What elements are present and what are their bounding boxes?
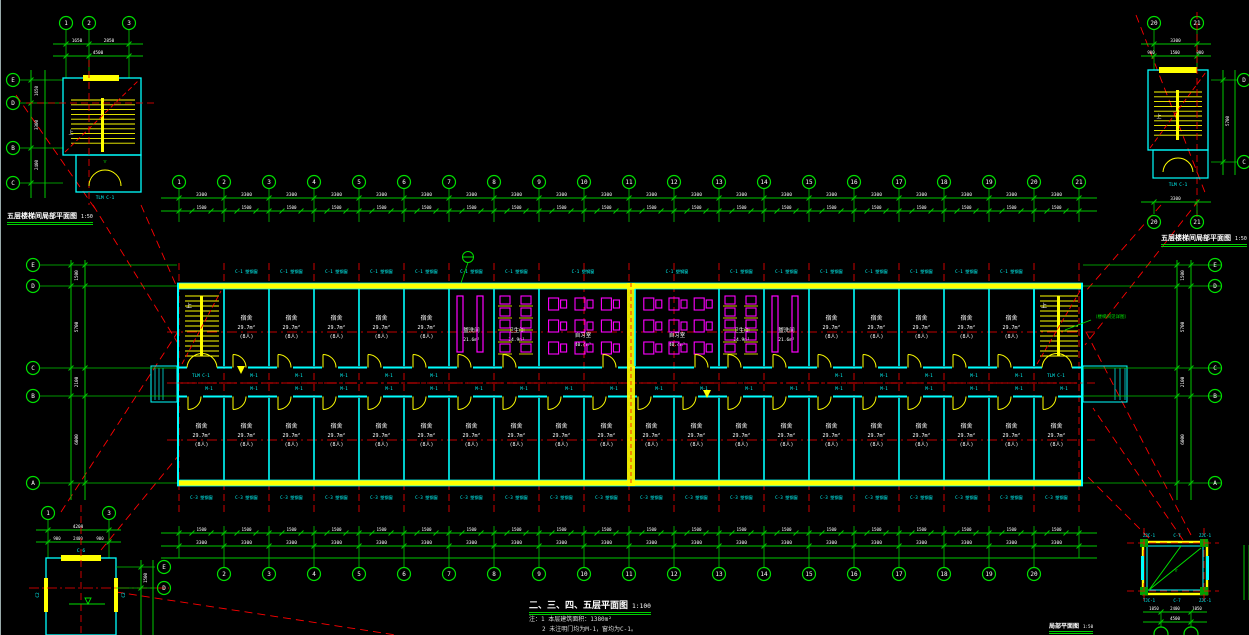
plan-note-1: 注：1 本层建筑面积：1380m² xyxy=(529,614,612,623)
frame-tag: ZJC-1 xyxy=(1143,533,1156,538)
toilet-stall xyxy=(521,320,531,328)
grid-bubble-label: 3 xyxy=(127,20,131,27)
door-tag: M-1 xyxy=(565,386,573,391)
window-tag-upper: C-1 塑钢窗 xyxy=(572,268,595,275)
grid-bubble-label: 8 xyxy=(492,571,496,578)
grid-bubble-label: 12 xyxy=(670,571,678,578)
room-area: 29.7m² xyxy=(1002,325,1020,331)
study-table xyxy=(601,342,611,354)
room-occupancy: (8人) xyxy=(374,334,388,340)
toilet-stall xyxy=(725,308,735,316)
dim-window: 1500 xyxy=(556,527,567,532)
grid-bubble-label: 9 xyxy=(537,571,541,578)
room-area: 29.7m² xyxy=(372,433,390,439)
dim: 1650 xyxy=(34,85,39,96)
room-occupancy: (8人) xyxy=(644,442,658,448)
room-occupancy: (8人) xyxy=(374,442,388,448)
window-tag: C2 xyxy=(35,592,41,598)
grid-bubble-label: 5 xyxy=(357,179,361,186)
study-chair xyxy=(561,344,567,352)
grid-bubble-label: 21 xyxy=(1075,179,1083,186)
room-area: 29.7m² xyxy=(192,433,210,439)
grid-bubble-label: D xyxy=(11,100,15,107)
dim-bay: 3300 xyxy=(1051,192,1062,198)
room-area: 29.7m² xyxy=(1047,433,1065,439)
grid-bubble-label: 20 xyxy=(1030,571,1038,578)
dim: 2850 xyxy=(104,38,115,44)
stair-up-label: 上 xyxy=(68,129,73,136)
room-label-dorm: 宿舍 xyxy=(690,422,702,430)
door-tag: M-1 xyxy=(880,386,888,391)
room-area: 29.7m² xyxy=(642,433,660,439)
stair-tr-scale: 1:50 xyxy=(1235,236,1247,242)
room-label-dorm: 宿舍 xyxy=(330,314,342,322)
dim: 5700 xyxy=(1225,115,1230,126)
grid-bubble-label: 15 xyxy=(805,179,813,186)
grid-bubble-label: D xyxy=(31,283,35,290)
dim-bay: 3300 xyxy=(781,192,792,198)
room-occupancy: (8人) xyxy=(869,442,883,448)
dim-window: 1500 xyxy=(241,205,252,210)
room-area: 29.7m² xyxy=(237,325,255,331)
dim-bay: 3300 xyxy=(466,192,477,198)
toilet-stall xyxy=(500,320,510,328)
dim-bay: 3300 xyxy=(241,192,252,198)
grid-bubble-label: 13 xyxy=(715,179,723,186)
study-chair xyxy=(613,344,619,352)
stair-window xyxy=(83,75,119,81)
window-tag-lower: C-3 塑钢窗 xyxy=(595,494,618,501)
toilet-stall xyxy=(725,320,735,328)
room-area: 29.7m² xyxy=(507,433,525,439)
dim-bay: 3300 xyxy=(961,192,972,198)
toilet-stall xyxy=(500,296,510,304)
room-label-dorm: 宿舍 xyxy=(375,314,387,322)
study-table xyxy=(575,298,585,310)
study-chair xyxy=(656,300,662,308)
grid-bubble-label: 14 xyxy=(760,179,768,186)
study-chair xyxy=(681,322,687,330)
grid-bubble-label: D xyxy=(1242,77,1246,84)
grid-bubble-label: 14 xyxy=(760,571,768,578)
room-label-dorm: 宿舍 xyxy=(285,314,297,322)
dim-window: 1500 xyxy=(601,205,612,210)
window xyxy=(44,578,48,612)
study-chair xyxy=(706,300,712,308)
grid-bubble-label: 10 xyxy=(580,179,588,186)
stair-rail xyxy=(1176,90,1179,140)
room-occupancy: (8人) xyxy=(554,442,568,448)
toilet-stall xyxy=(521,344,531,352)
dim-bay: 3300 xyxy=(601,540,612,546)
dim: 900 xyxy=(96,536,104,541)
door-tag: M-1 xyxy=(295,386,303,391)
level-mark xyxy=(85,598,91,604)
main-title-text: 二、三、四、五层平面图 xyxy=(529,601,628,611)
frame-tag: C-7 xyxy=(1173,598,1181,603)
room-area: 40.4m² xyxy=(575,342,592,348)
grid-bubble-label: 2 xyxy=(222,179,226,186)
grid-bubble-label: E xyxy=(1213,262,1217,269)
room-occupancy: (8人) xyxy=(869,334,883,340)
study-chair xyxy=(587,322,593,330)
dim: 3300 xyxy=(1170,196,1181,202)
room-label-dorm: 宿舍 xyxy=(510,422,522,430)
dim-bay: 3300 xyxy=(871,192,882,198)
grid-bubble-label: C xyxy=(31,365,35,372)
grid-bubble-label: E xyxy=(162,564,166,571)
window-tag-lower: C-3 塑钢窗 xyxy=(460,494,483,501)
room-label-dorm: 宿舍 xyxy=(1005,314,1017,322)
window-tag-upper: C-1 塑钢窗 xyxy=(505,268,528,275)
dim-bay: 3300 xyxy=(556,192,567,198)
grid-bubble-label: 1 xyxy=(64,20,68,27)
window-tag-lower: C-3 塑钢窗 xyxy=(730,494,753,501)
door-tag: M-1 xyxy=(610,386,618,391)
dim-bay: 3300 xyxy=(826,540,837,546)
grid-bubble-label: B xyxy=(31,393,35,400)
grid-bubble-label: 5 xyxy=(357,571,361,578)
dim: 2400 xyxy=(34,159,39,170)
frame-tag: ZJC-1 xyxy=(1199,533,1212,538)
window-tag-upper: C-1 塑钢窗 xyxy=(820,268,843,275)
study-table xyxy=(601,298,611,310)
room-label-dorm: 宿舍 xyxy=(735,422,747,430)
dim-bay: 3300 xyxy=(466,540,477,546)
dim-bay: 3300 xyxy=(196,192,207,198)
room-label-dorm: 宿舍 xyxy=(375,422,387,430)
dim: 900 xyxy=(53,536,61,541)
grid-bubble-label: D xyxy=(1213,283,1217,290)
room-occupancy: (8人) xyxy=(464,442,478,448)
cad-viewport[interactable]: { "canvas":{"w":1249,"h":635,"bg":"#0000… xyxy=(0,0,1249,635)
study-table xyxy=(694,298,704,310)
dim-window: 1500 xyxy=(826,205,837,210)
room-area: 29.7m² xyxy=(417,325,435,331)
grid-bubble-label: E xyxy=(31,262,35,269)
room-area: 29.7m² xyxy=(732,433,750,439)
window-tag-lower: C-3 塑钢窗 xyxy=(190,494,213,501)
door-tag: M-1 xyxy=(790,386,798,391)
room-area: 29.7m² xyxy=(372,325,390,331)
room-area: 29.7m² xyxy=(282,433,300,439)
study-chair xyxy=(561,322,567,330)
study-table xyxy=(575,320,585,332)
plan-note-2: 2 未注明门均为M-1，窗均为C-1。 xyxy=(542,624,637,633)
dim-bay: 3300 xyxy=(646,540,657,546)
dim-window: 1500 xyxy=(196,527,207,532)
grid-bubble-label: A xyxy=(31,480,35,487)
window-tag-lower: C-3 塑钢窗 xyxy=(505,494,528,501)
door-tag: M-1 xyxy=(385,386,393,391)
dim-window: 1500 xyxy=(511,205,522,210)
right-dim-chain: EDCBA1500570021006000 xyxy=(1083,259,1222,501)
grid-bubble-label: 2 xyxy=(87,20,91,27)
room-label-dorm: 宿舍 xyxy=(1005,422,1017,430)
room-area: 29.7m² xyxy=(912,433,930,439)
dim-window: 1500 xyxy=(1006,205,1017,210)
grid-bubble-label: 17 xyxy=(895,571,903,578)
dim-window: 1500 xyxy=(601,527,612,532)
dim-bay: 3300 xyxy=(331,540,342,546)
room-area: 29.7m² xyxy=(912,325,930,331)
room-label-dorm: 宿舍 xyxy=(285,422,297,430)
room-label-dorm: 宿舍 xyxy=(915,422,927,430)
grid-bubble-label: B xyxy=(11,145,15,152)
grid-bubble-label: 20 xyxy=(1150,219,1158,226)
dim: 4500 xyxy=(1170,616,1181,621)
room-area: 29.7m² xyxy=(237,433,255,439)
dim-bay: 3300 xyxy=(691,192,702,198)
dim-bay: 3300 xyxy=(781,540,792,546)
grid-bubble-label: A xyxy=(1213,480,1217,487)
room-label-dorm: 宿舍 xyxy=(1050,422,1062,430)
study-chair xyxy=(706,344,712,352)
main-title-scale: 1:100 xyxy=(632,603,651,610)
room-occupancy: (8人) xyxy=(959,334,973,340)
room-area: 29.7m² xyxy=(822,325,840,331)
main-plan: 上上 xyxy=(177,283,1083,486)
grid-bubble-label: 10 xyxy=(580,571,588,578)
toilet-stall xyxy=(746,296,756,304)
window-tag-lower: C-3 塑钢窗 xyxy=(685,494,708,501)
stair-window xyxy=(1159,67,1197,73)
study-chair xyxy=(706,322,712,330)
study-table xyxy=(644,320,654,332)
grid-bubble-label: 13 xyxy=(715,571,723,578)
dim-window: 1500 xyxy=(286,527,297,532)
room-area: 29.7m² xyxy=(417,433,435,439)
dim-bay: 3300 xyxy=(376,192,387,198)
room-label-dorm: 宿舍 xyxy=(465,422,477,430)
detail-bottom-right: ▽ZJC-1C-7ZJC-1TJC-1C-7ZJC-11050240010504… xyxy=(1127,528,1249,635)
window-tag-upper: C-1 塑钢窗 xyxy=(325,268,348,275)
grid-bubble-label: C xyxy=(1242,159,1246,166)
dim: 1500 xyxy=(1170,50,1180,55)
grid-bubble-label: 8 xyxy=(492,179,496,186)
dim: 1500 xyxy=(143,572,148,583)
dim-bay: 3300 xyxy=(511,540,522,546)
room-area: 29.7m² xyxy=(597,433,615,439)
window-tag-lower: C-3 塑钢窗 xyxy=(550,494,573,501)
stair-detail-title-tl: 五层楼梯间局部平面图1:50 xyxy=(7,211,93,225)
grid-bubble-label: 18 xyxy=(940,571,948,578)
dim-window: 1500 xyxy=(421,527,432,532)
study-table xyxy=(549,298,559,310)
study-table xyxy=(644,342,654,354)
dim: 4500 xyxy=(93,50,104,56)
dim-bay: 3300 xyxy=(916,540,927,546)
room-area: 29.7m² xyxy=(957,325,975,331)
wash-trough xyxy=(457,296,463,352)
window xyxy=(1141,556,1144,580)
door-tag: M-1 xyxy=(205,386,213,391)
dim: 3300 xyxy=(34,119,39,130)
room-label-dorm: 宿舍 xyxy=(870,422,882,430)
dim-window: 1500 xyxy=(421,205,432,210)
dim-bay: 3300 xyxy=(1006,540,1017,546)
room-label-dorm: 宿舍 xyxy=(960,422,972,430)
room-area: 29.7m² xyxy=(867,325,885,331)
toilet-stall xyxy=(725,296,735,304)
study-chair xyxy=(561,300,567,308)
grid-bubble-label: 12 xyxy=(670,179,678,186)
dim-window: 1500 xyxy=(1006,527,1017,532)
study-chair xyxy=(681,300,687,308)
room-area: 29.7m² xyxy=(462,433,480,439)
grid-bubble-label: 1 xyxy=(46,510,50,517)
room-occupancy: (8人) xyxy=(599,442,613,448)
grid-bubble-label: D xyxy=(162,585,166,592)
door-tag: M-1 xyxy=(430,373,438,378)
dim: 1050 xyxy=(1192,606,1202,611)
window-tag-upper: C-1 塑钢窗 xyxy=(865,268,888,275)
study-table xyxy=(549,320,559,332)
room-occupancy: (8人) xyxy=(194,442,208,448)
frame-tag: ZJC-1 xyxy=(1199,598,1212,603)
toilet-stall xyxy=(500,344,510,352)
room-occupancy: (8人) xyxy=(239,442,253,448)
window-tag-lower: C-3 塑钢窗 xyxy=(1000,494,1023,501)
window-tag-upper: C-1 塑钢窗 xyxy=(415,268,438,275)
frame-tag: TJC-1 xyxy=(1143,598,1156,603)
stair-tl-text: 五层楼梯间局部平面图 xyxy=(7,212,77,220)
study-chair xyxy=(613,322,619,330)
grid-bubble xyxy=(1154,627,1168,635)
dim: 3300 xyxy=(1170,38,1181,44)
detail-top-right: 202133009001500900上TLM C-1DC570033002021 xyxy=(1141,12,1249,229)
dim-bay: 3300 xyxy=(1051,540,1062,546)
door-tag: M-1 xyxy=(835,386,843,391)
room-label-dorm: 宿舍 xyxy=(960,314,972,322)
toilet-stall xyxy=(521,308,531,316)
room-area: 29.7m² xyxy=(1002,433,1020,439)
room-area: 29.7m² xyxy=(282,325,300,331)
stair-door-tag: TLM C-1 xyxy=(1169,182,1188,188)
dim-bay: 3300 xyxy=(646,192,657,198)
grid-bubble-label: 3 xyxy=(107,510,111,517)
dim-bay: 3300 xyxy=(736,540,747,546)
grid-bubble-label: 18 xyxy=(940,179,948,186)
room-occupancy: (8人) xyxy=(1004,334,1018,340)
window-tag-lower: C-3 塑钢窗 xyxy=(325,494,348,501)
dim-window: 1500 xyxy=(331,205,342,210)
window xyxy=(114,578,118,612)
left-dim-chain: EDCBA1500570021006000 xyxy=(27,259,178,501)
window-tag-upper: C-1 塑钢窗 xyxy=(1000,268,1023,275)
grid-bubble-label: 9 xyxy=(537,179,541,186)
door-tag: M-1 xyxy=(970,386,978,391)
stair-detail-title-tr: 五层楼梯间局部平面图1:50 xyxy=(1161,233,1247,247)
window-tag-lower: C-3 塑钢窗 xyxy=(235,494,258,501)
window-tag-upper: C-1 塑钢窗 xyxy=(666,268,689,275)
grid-bubble-label: 21 xyxy=(1193,219,1201,226)
grid-bubble-label: 7 xyxy=(447,179,451,186)
stair-door-tag: TLM C-1 xyxy=(192,373,210,378)
level-mark: ▽ xyxy=(1174,568,1177,574)
dim-window: 1500 xyxy=(781,205,792,210)
dim-vert: 5700 xyxy=(1180,321,1186,332)
east-porch xyxy=(1083,366,1127,402)
window-tag-lower: C-3 塑钢窗 xyxy=(280,494,303,501)
dim-window: 1500 xyxy=(241,527,252,532)
room-area: 29.7m² xyxy=(867,433,885,439)
room-occupancy: (8人) xyxy=(1049,442,1063,448)
room-area: 29.7m² xyxy=(552,433,570,439)
study-table xyxy=(694,342,704,354)
grid-bubble-label: 16 xyxy=(850,571,858,578)
dim-window: 1500 xyxy=(466,205,477,210)
grid-bubble-label: 7 xyxy=(447,571,451,578)
door-tag: M-1 xyxy=(925,386,933,391)
door-tag: M-1 xyxy=(970,373,978,378)
room-label-dorm: 宿舍 xyxy=(825,314,837,322)
door-tag: M-1 xyxy=(430,386,438,391)
room-occupancy: (8人) xyxy=(284,442,298,448)
study-chair xyxy=(613,300,619,308)
dim-window: 1500 xyxy=(961,527,972,532)
stair-tl-scale: 1:50 xyxy=(81,214,93,220)
grid-bubble-label: 11 xyxy=(625,571,633,578)
toilet-stall xyxy=(500,308,510,316)
room-label-dorm: 宿舍 xyxy=(645,422,657,430)
window-tag-lower: C-3 塑钢窗 xyxy=(955,494,978,501)
dim-window: 1500 xyxy=(331,527,342,532)
window xyxy=(1206,556,1209,580)
window-tag-lower: C-3 塑钢窗 xyxy=(910,494,933,501)
dim-bay: 3300 xyxy=(871,540,882,546)
cad-canvas[interactable]: 上上宿舍29.7m²(8人)宿舍29.7m²(8人)宿舍29.7m²(8人)宿舍… xyxy=(1,0,1249,635)
dim-bay: 3300 xyxy=(376,540,387,546)
room-area: 29.7m² xyxy=(957,433,975,439)
window-tag-upper: C-1 塑钢窗 xyxy=(955,268,978,275)
window-tag-lower: C-3 塑钢窗 xyxy=(415,494,438,501)
study-table xyxy=(549,342,559,354)
level-mark: ▽ xyxy=(103,159,106,165)
dim-window: 1500 xyxy=(736,527,747,532)
room-area: 29.7m² xyxy=(822,433,840,439)
dim-bay: 3300 xyxy=(196,540,207,546)
dim-window: 1500 xyxy=(646,205,657,210)
grid-bubble xyxy=(1184,627,1198,635)
grid-bubble-label: 20 xyxy=(1030,179,1038,186)
door-tag: M-1 xyxy=(1015,373,1023,378)
room-label-dorm: 宿舍 xyxy=(600,422,612,430)
stair-vestibule xyxy=(76,155,141,192)
section-mark xyxy=(237,366,245,374)
window-tag-upper: C-1 塑钢窗 xyxy=(775,268,798,275)
room-area: 29.7m² xyxy=(327,325,345,331)
room-occupancy: (8人) xyxy=(419,442,433,448)
dim-window: 1500 xyxy=(646,527,657,532)
room-occupancy: (8人) xyxy=(284,334,298,340)
room-area: 40.4m² xyxy=(669,342,686,348)
dim-vert: 2100 xyxy=(74,376,80,387)
grid-bubble-label: C xyxy=(11,180,15,187)
room-label-dorm: 宿舍 xyxy=(825,422,837,430)
stair-note: （楼梯间见详图） xyxy=(1093,313,1129,320)
grid-bubble-label: 1 xyxy=(177,179,181,186)
window-tag-lower: C-3 塑钢窗 xyxy=(865,494,888,501)
dim: 1050 xyxy=(1149,606,1159,611)
grid-bubble-label: 3 xyxy=(267,571,271,578)
dim-window: 1500 xyxy=(1051,527,1062,532)
dim-window: 1500 xyxy=(691,527,702,532)
window-tag-upper: C-1 塑钢窗 xyxy=(280,268,303,275)
dim-vert: 6000 xyxy=(1180,434,1186,445)
dim-bay: 3300 xyxy=(421,192,432,198)
dim-bay: 3300 xyxy=(826,192,837,198)
